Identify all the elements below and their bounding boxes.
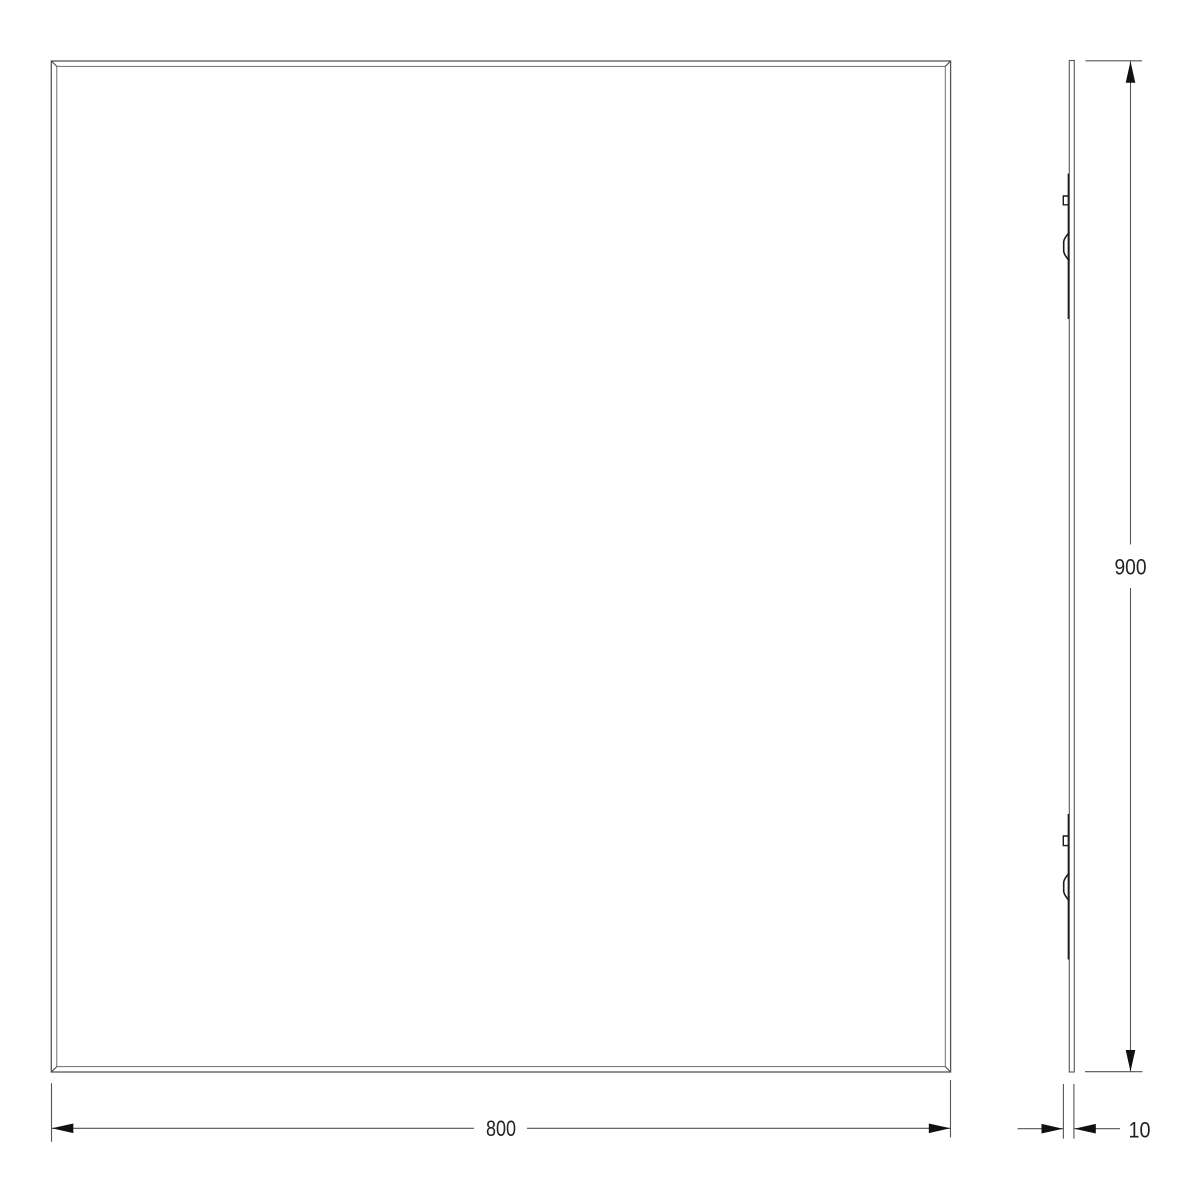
svg-text:10: 10 [1129, 1117, 1151, 1142]
svg-text:900: 900 [1115, 555, 1147, 580]
svg-text:800: 800 [486, 1116, 516, 1141]
